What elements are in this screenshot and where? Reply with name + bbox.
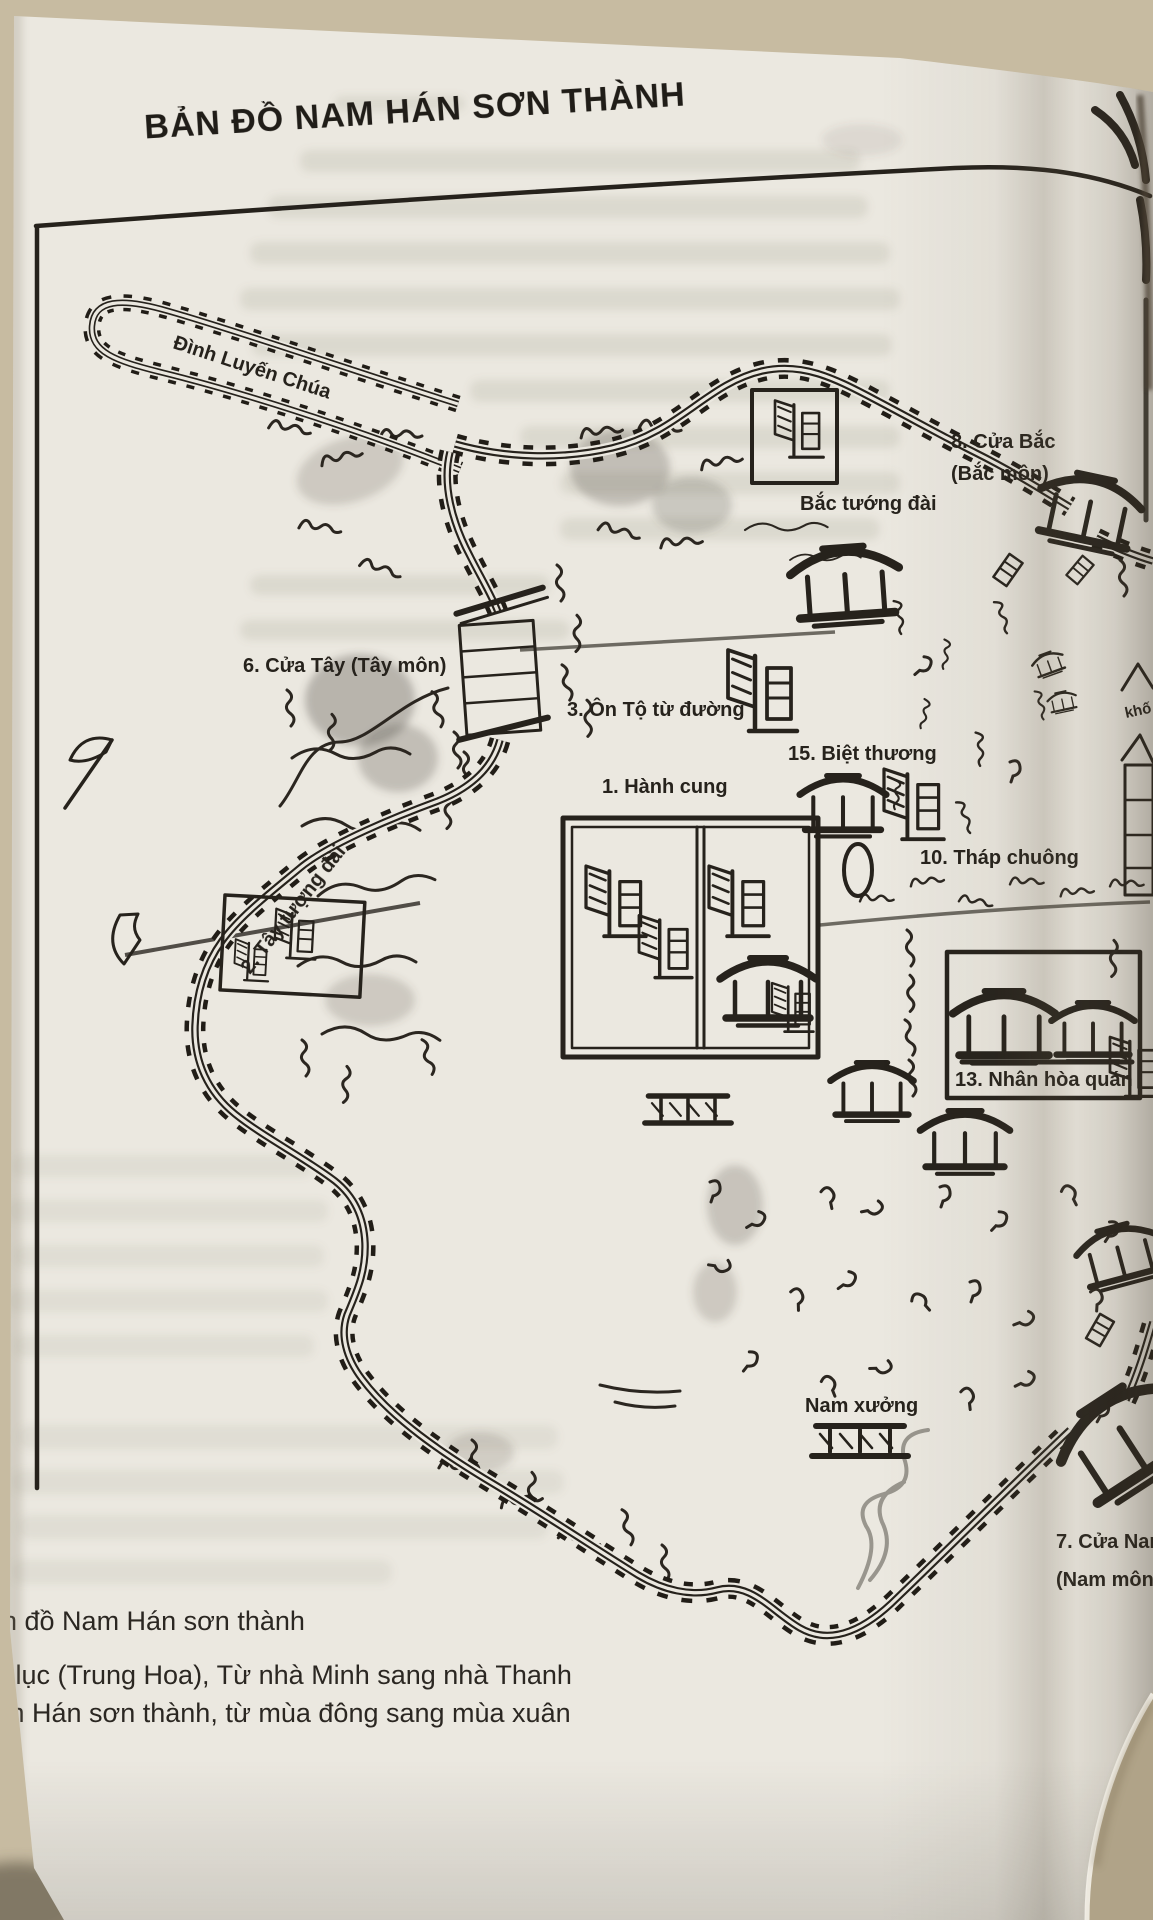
- label-palace: 1. Hành cung: [602, 776, 728, 798]
- map-page: BẢN ĐỒ NAM HÁN SƠN THÀNH Đình Luyến Chúa…: [0, 0, 1153, 1920]
- book-photo: BẢN ĐỒ NAM HÁN SƠN THÀNH Đình Luyến Chúa…: [0, 0, 1153, 1920]
- caption-line-1: n đồ Nam Hán sơn thành: [2, 1606, 305, 1636]
- caption-line-2: i lục (Trung Hoa), Từ nhà Minh sang nhà …: [2, 1660, 572, 1690]
- label-onto-shrine: 3. Ôn Tộ từ đường: [567, 697, 745, 721]
- label-west-gate: 6. Cửa Tây (Tây môn): [243, 655, 446, 677]
- caption-line-3: m Hán sơn thành, từ mùa đông sang mùa xu…: [2, 1698, 571, 1728]
